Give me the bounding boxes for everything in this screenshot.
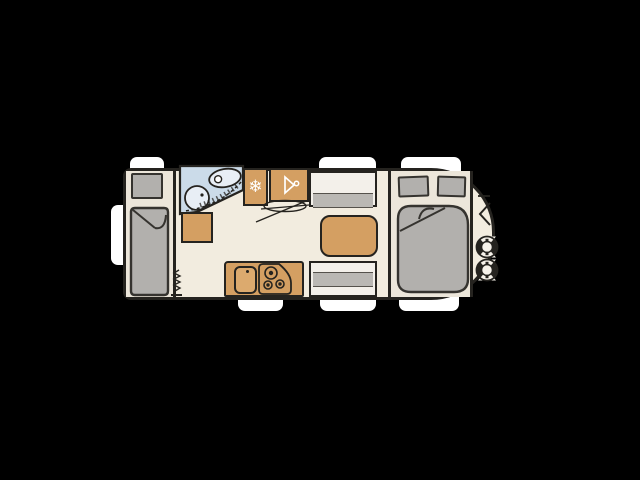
dinette-bench-top — [309, 171, 377, 207]
bedroom-mattress — [393, 203, 472, 296]
gas-locker-chevron — [476, 194, 494, 228]
tv-bracket — [254, 196, 314, 224]
hanger-icon — [280, 174, 302, 196]
rear-bed-mattress — [129, 206, 170, 297]
floorplan-canvas: ❄ — [0, 0, 640, 480]
sink-faucet — [246, 270, 249, 273]
dinette-table — [320, 215, 378, 257]
gas-bottle-1 — [477, 237, 498, 258]
front-wall — [470, 171, 473, 297]
bedroom-pillow-left — [398, 175, 430, 197]
washbasin — [185, 186, 209, 210]
dinette-bench-bottom — [309, 261, 377, 297]
hob-three-burner — [258, 263, 293, 296]
bedroom-pillow-right — [437, 176, 467, 198]
snowflake-icon: ❄ — [248, 179, 262, 196]
gas-bottle-2 — [477, 260, 498, 281]
washroom-cabinet — [181, 212, 213, 243]
rear-bed-pillow — [131, 173, 163, 199]
gas-bottles — [474, 234, 500, 284]
heater-icon — [170, 268, 183, 298]
washroom — [178, 164, 246, 217]
